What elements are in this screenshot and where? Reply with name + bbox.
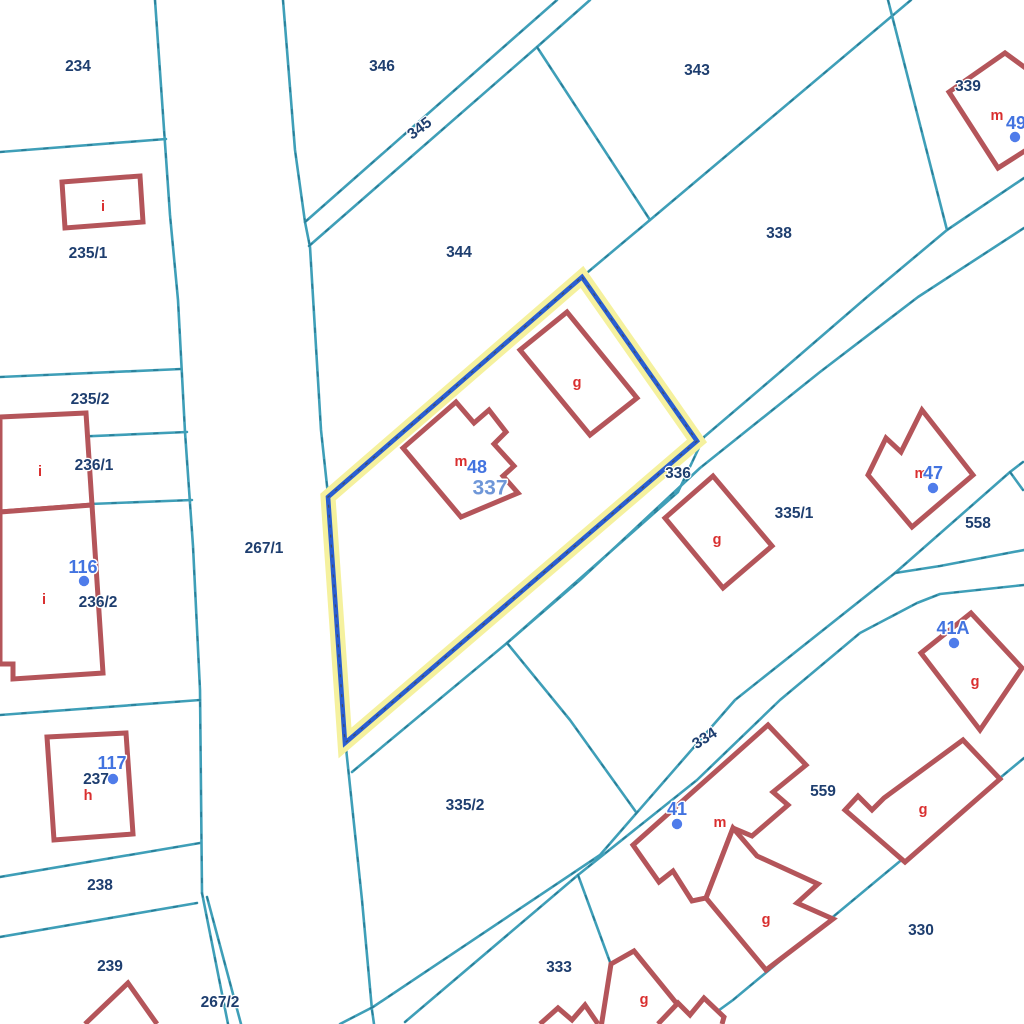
house-number-dot (672, 819, 682, 829)
parcel-number-label: 236/2 (79, 594, 118, 611)
building-use-letter: g (762, 912, 771, 928)
house-number-dot (108, 774, 118, 784)
house-number-label: 41 (667, 799, 687, 819)
parcel-number-label: 235/1 (69, 245, 108, 262)
building-use-letter: m (714, 815, 727, 831)
building-use-letter: g (573, 375, 582, 391)
parcel-number-label: 338 (766, 225, 792, 242)
parcel-boundary-line (0, 843, 200, 877)
parcel-number-label: 339 (955, 78, 981, 95)
parcel-number-label: 267/2 (201, 994, 240, 1011)
parcel-number-label: 336 (665, 465, 691, 482)
parcel-boundaries-layer (0, 0, 1024, 1024)
house-number-label: 47 (923, 463, 943, 483)
parcel-boundary-line (0, 903, 197, 937)
parcel-number-label: 238 (87, 877, 113, 894)
buildings-layer (0, 53, 1024, 1024)
parcel-boundary-line (283, 0, 328, 495)
parcel-number-label: 267/1 (245, 540, 284, 557)
parcel-boundary-line (582, 0, 911, 277)
parcel-boundary-ticks (155, 0, 202, 893)
building-use-letter: g (640, 992, 649, 1008)
house-number-dot (928, 483, 938, 493)
parcel-number-label: 559 (810, 783, 836, 800)
building-use-letter: m (991, 108, 1004, 124)
building-outline (540, 1005, 598, 1024)
building-use-letter: i (42, 592, 46, 608)
house-number-label: 41A (936, 618, 969, 638)
parcel-number-label: 346 (369, 58, 395, 75)
parcel-boundary-line (507, 643, 636, 812)
parcel-number-label: 335/2 (446, 797, 485, 814)
house-number-dot (949, 638, 959, 648)
building-use-letter: i (101, 199, 105, 215)
building-use-letter: i (38, 464, 42, 480)
parcel-number-label: 234 (65, 58, 91, 75)
parcel-boundary-line (309, 0, 590, 246)
building-outline (949, 53, 1024, 168)
parcel-boundary-line (0, 700, 200, 715)
selected-parcel-number-label: 337 (472, 477, 507, 500)
parcel-number-label: 558 (965, 515, 991, 532)
cadastral-map[interactable]: 234235/1235/2236/1236/2237238239267/1267… (0, 0, 1024, 1024)
building-use-letter: g (713, 532, 722, 548)
house-number-label: 117 (97, 753, 126, 773)
parcel-number-label: 237 (83, 771, 109, 788)
house-number-label: 49 (1006, 113, 1024, 133)
parcel-number-label: 335/1 (775, 505, 814, 522)
house-number-label: 48 (467, 457, 487, 477)
selected-parcel-halo (328, 277, 697, 743)
building-use-letter: m (455, 454, 468, 470)
building-outline (0, 505, 103, 679)
parcel-number-label: 330 (908, 922, 934, 939)
house-number-label: 116 (68, 557, 97, 577)
parcel-number-label: 239 (97, 958, 123, 975)
parcel-number-label: 344 (446, 244, 472, 261)
parcel-boundary-line (704, 178, 1024, 437)
selected-parcel-layer (328, 277, 697, 743)
parcel-boundary-line (155, 0, 202, 893)
parcel-number-label: 333 (546, 959, 572, 976)
house-number-dot (1010, 132, 1020, 142)
parcel-number-label: 236/1 (75, 457, 114, 474)
parcel-boundary-ticks (704, 178, 1024, 437)
labels-layer: 234235/1235/2236/1236/2237238239267/1267… (38, 58, 1024, 1011)
parcel-boundary-line (90, 500, 192, 504)
building-outline (85, 983, 157, 1024)
house-number-dot (79, 576, 89, 586)
parcel-number-label: 235/2 (71, 391, 110, 408)
building-use-letter: g (971, 674, 980, 690)
parcel-number-label: 343 (684, 62, 710, 79)
parcel-boundary-line (346, 748, 374, 1024)
building-use-letter: h (84, 788, 93, 804)
building-use-letter: g (919, 802, 928, 818)
building-outline (706, 828, 833, 970)
map-svg[interactable]: 234235/1235/2236/1236/2237238239267/1267… (0, 0, 1024, 1024)
